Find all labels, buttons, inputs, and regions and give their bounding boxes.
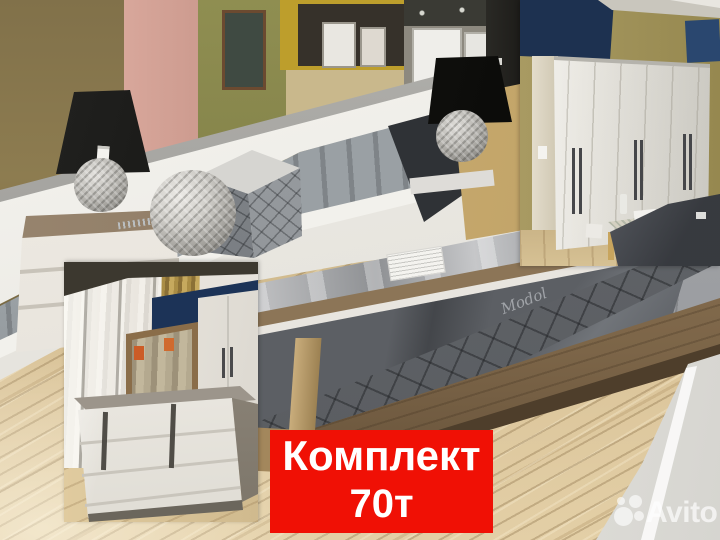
- banner-line2: 70т: [349, 484, 413, 524]
- price-banner: Комплект 70т: [270, 430, 493, 533]
- wardrobe-handle: [222, 348, 225, 378]
- avito-watermark-text: Avito: [646, 496, 717, 530]
- wardrobe-handle: [230, 347, 233, 377]
- display-door: [322, 22, 356, 68]
- wardrobe-handle: [579, 148, 582, 214]
- bottle-decor: [620, 194, 627, 214]
- wardrobe-handle: [689, 134, 692, 190]
- avito-watermark: Avito: [608, 488, 720, 536]
- glass-sphere-vase: [150, 170, 236, 256]
- listing-photo-collage: Modol: [0, 0, 720, 540]
- avito-logo-icon: [629, 495, 642, 508]
- avito-logo-icon: [614, 507, 633, 526]
- navy-wall-patch: [685, 19, 720, 63]
- orange-price-tag: [164, 338, 174, 351]
- wardrobe-handle: [572, 148, 575, 214]
- wardrobe-handle: [683, 134, 686, 190]
- display-door: [360, 27, 386, 67]
- table-lamp-right-base: [436, 110, 488, 162]
- avito-logo-icon: [634, 511, 644, 521]
- wardrobe-handle: [634, 140, 637, 200]
- cloth-tag: [696, 212, 706, 219]
- wardrobe-price-tag: [538, 146, 547, 159]
- table-lamp-left-base: [74, 158, 128, 212]
- banner-line1: Комплект: [282, 435, 480, 477]
- background-cabinet: [222, 10, 266, 90]
- avito-logo-icon: [617, 497, 625, 505]
- orange-price-tag: [134, 346, 144, 360]
- inset-photo-dresser: [64, 262, 258, 522]
- wardrobe-handle: [640, 140, 643, 200]
- white-box: [586, 223, 603, 238]
- inset-photo-wardrobe: [520, 0, 720, 266]
- navy-wall: [520, 0, 614, 62]
